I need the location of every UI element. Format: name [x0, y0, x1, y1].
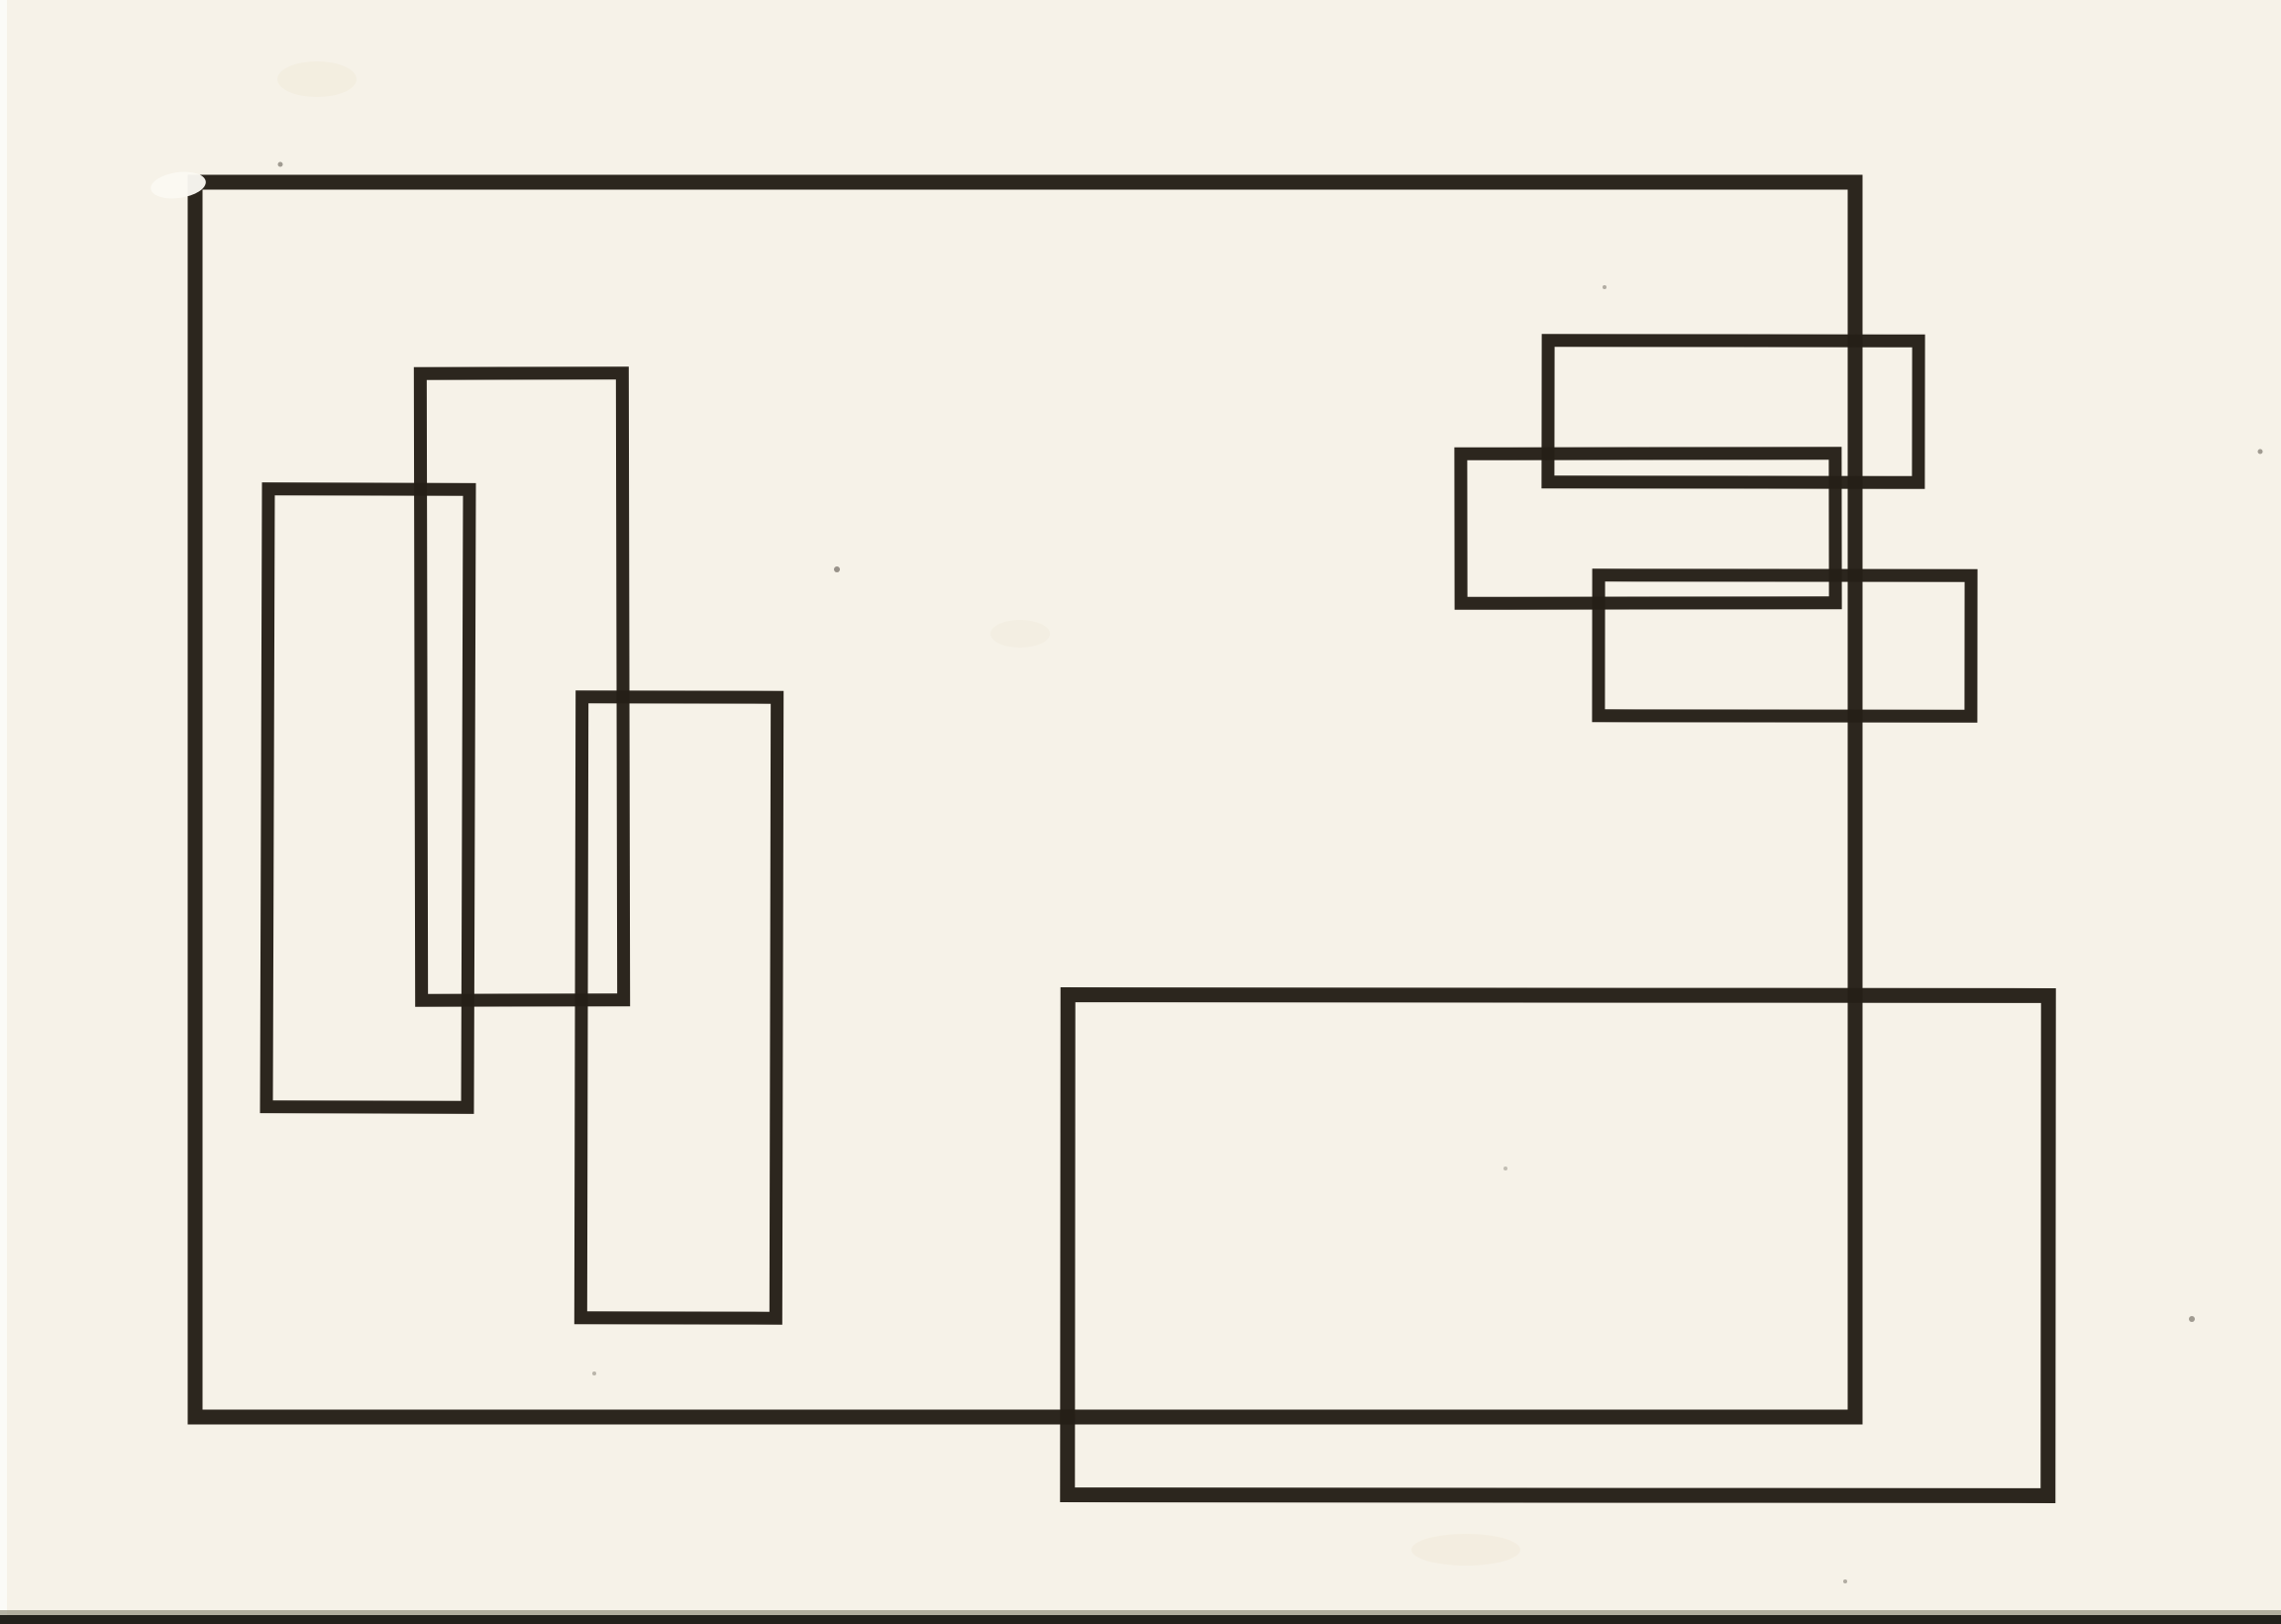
paper-blotch — [1411, 1534, 1520, 1566]
scanned-paper — [0, 0, 2281, 1624]
paper-blotch — [277, 61, 357, 97]
scan-bottom-gray-line — [0, 1610, 2281, 1615]
paper-blotch — [990, 620, 1050, 648]
scan-speckle — [2189, 1316, 2195, 1322]
abstract-drawing-svg — [0, 0, 2281, 1624]
scan-speckle — [1503, 1167, 1507, 1170]
scan-speckle — [1603, 285, 1607, 289]
paper-background — [0, 0, 2281, 1624]
scan-bottom-dark-band — [0, 1615, 2281, 1624]
scan-speckle — [2258, 450, 2263, 455]
scan-speckle — [278, 162, 283, 167]
scan-left-edge-strip — [0, 0, 7, 1624]
scan-speckle — [592, 1371, 596, 1375]
scan-speckle — [834, 566, 840, 572]
scan-speckle — [1843, 1579, 1847, 1583]
